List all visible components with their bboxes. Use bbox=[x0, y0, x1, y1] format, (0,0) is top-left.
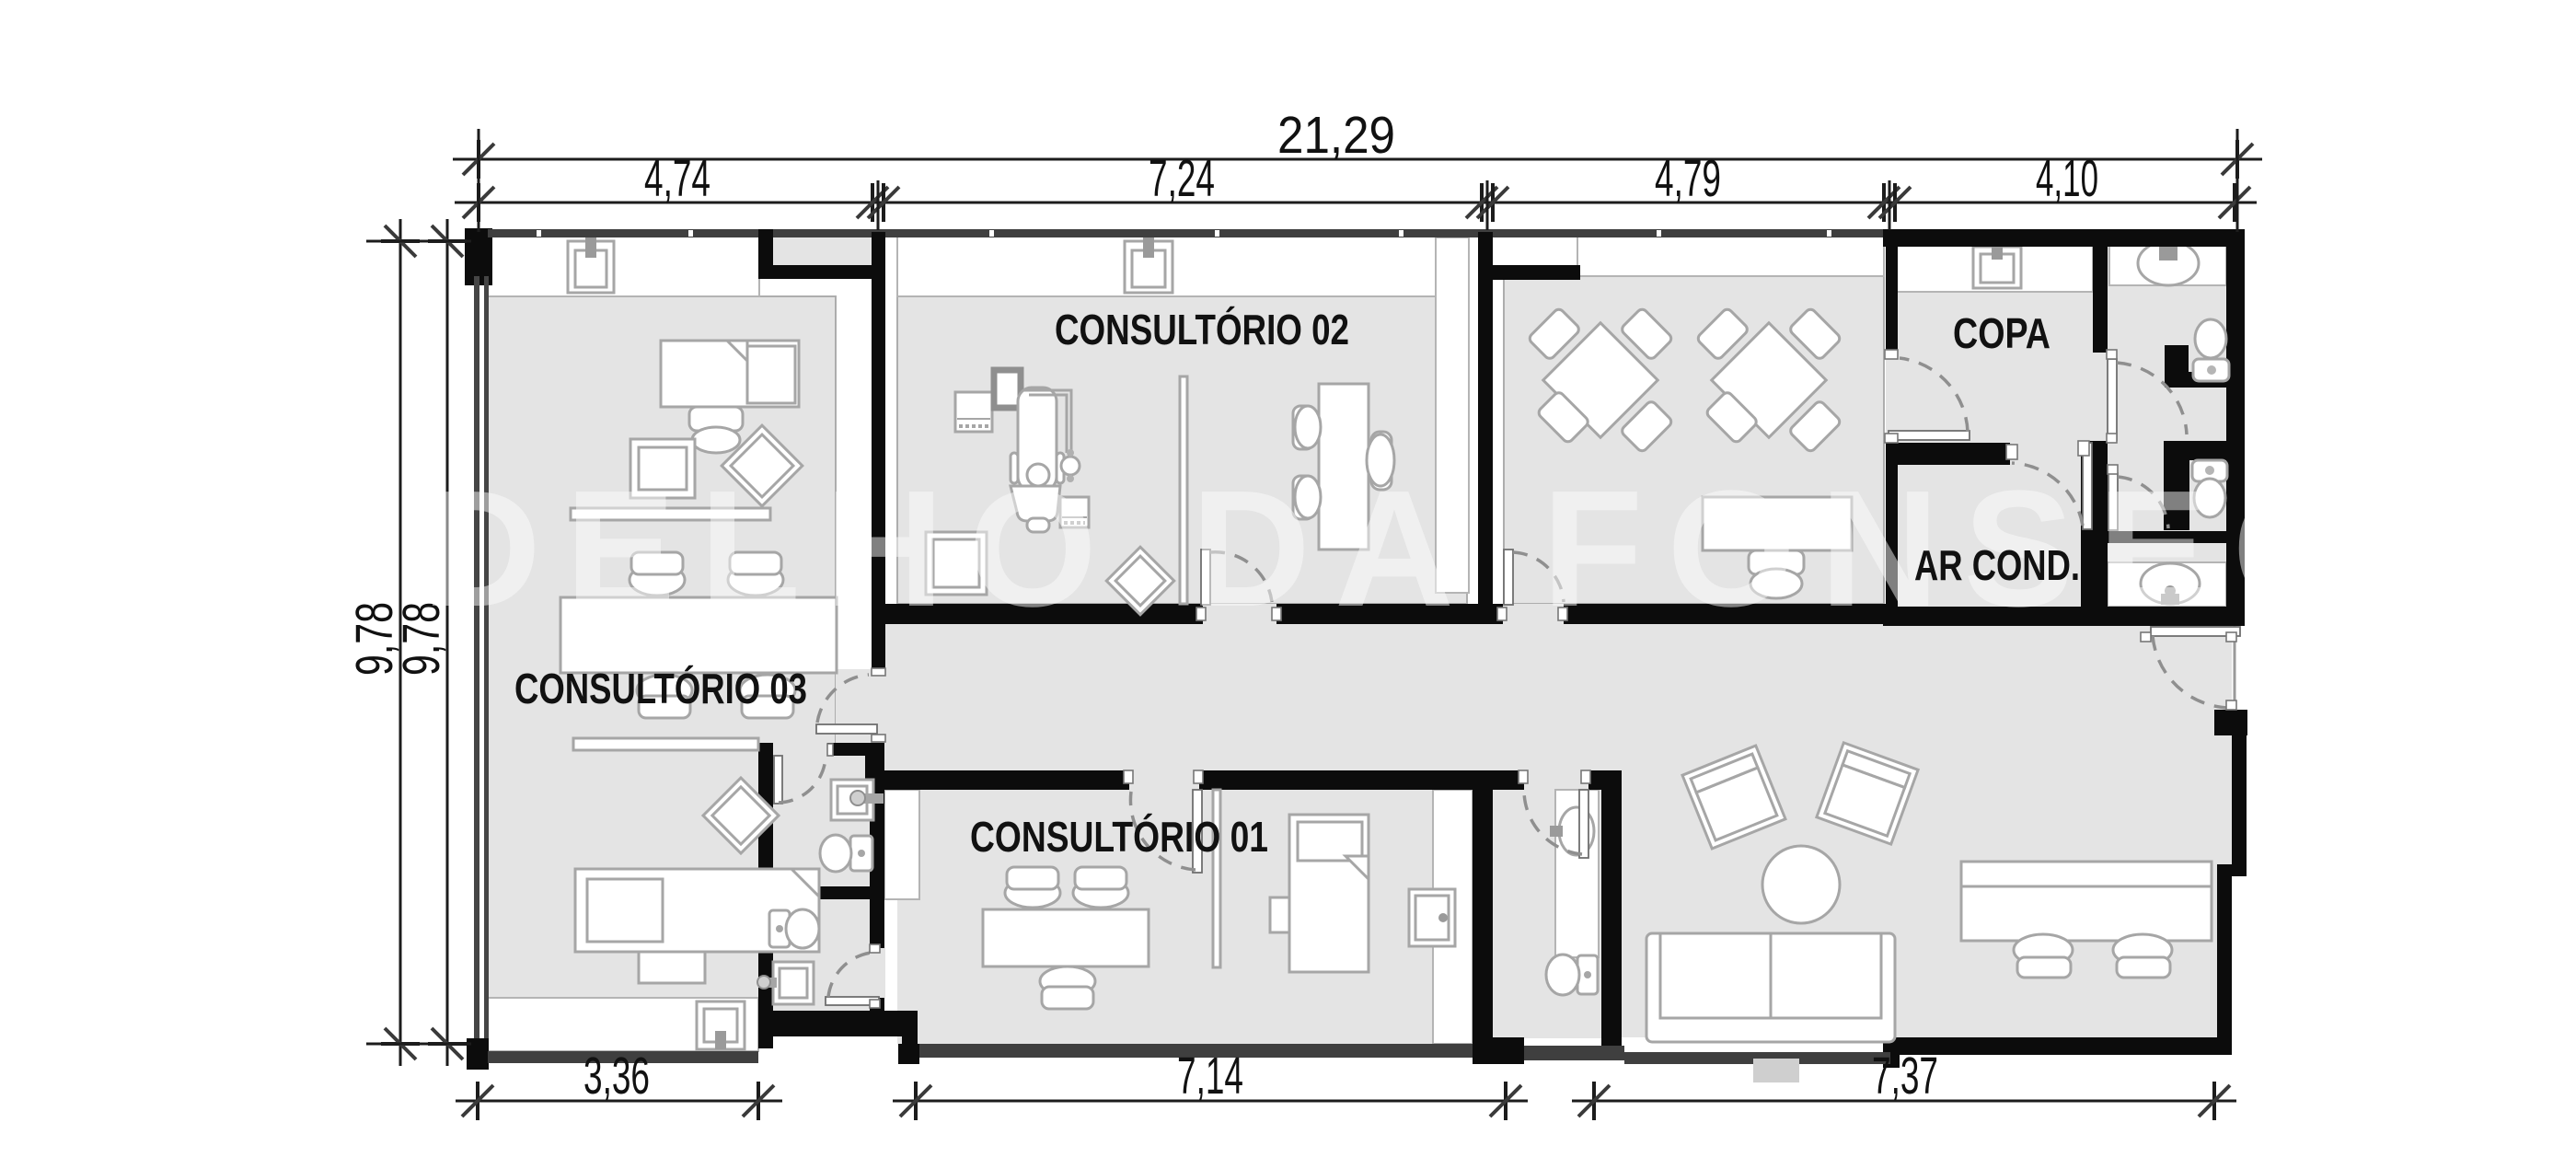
svg-text:7,24: 7,24 bbox=[1149, 149, 1215, 208]
svg-text:7,37: 7,37 bbox=[1872, 1047, 1938, 1105]
svg-text:DELHO DA FONSECA: DELHO DA FONSECA bbox=[422, 457, 2519, 642]
svg-text:4,79: 4,79 bbox=[1655, 149, 1721, 208]
svg-text:4,74: 4,74 bbox=[644, 149, 710, 208]
svg-text:COPA: COPA bbox=[1953, 309, 2050, 357]
svg-text:CONSULTÓRIO 01: CONSULTÓRIO 01 bbox=[970, 813, 1268, 861]
svg-text:4,10: 4,10 bbox=[2036, 149, 2098, 208]
svg-text:21,29: 21,29 bbox=[1277, 106, 1395, 165]
svg-text:7,14: 7,14 bbox=[1177, 1047, 1243, 1105]
svg-text:CONSULTÓRIO 02: CONSULTÓRIO 02 bbox=[1055, 306, 1349, 353]
svg-text:CONSULTÓRIO 03: CONSULTÓRIO 03 bbox=[514, 665, 807, 712]
svg-text:3,36: 3,36 bbox=[583, 1047, 650, 1105]
svg-text:AR COND.: AR COND. bbox=[1914, 541, 2080, 589]
